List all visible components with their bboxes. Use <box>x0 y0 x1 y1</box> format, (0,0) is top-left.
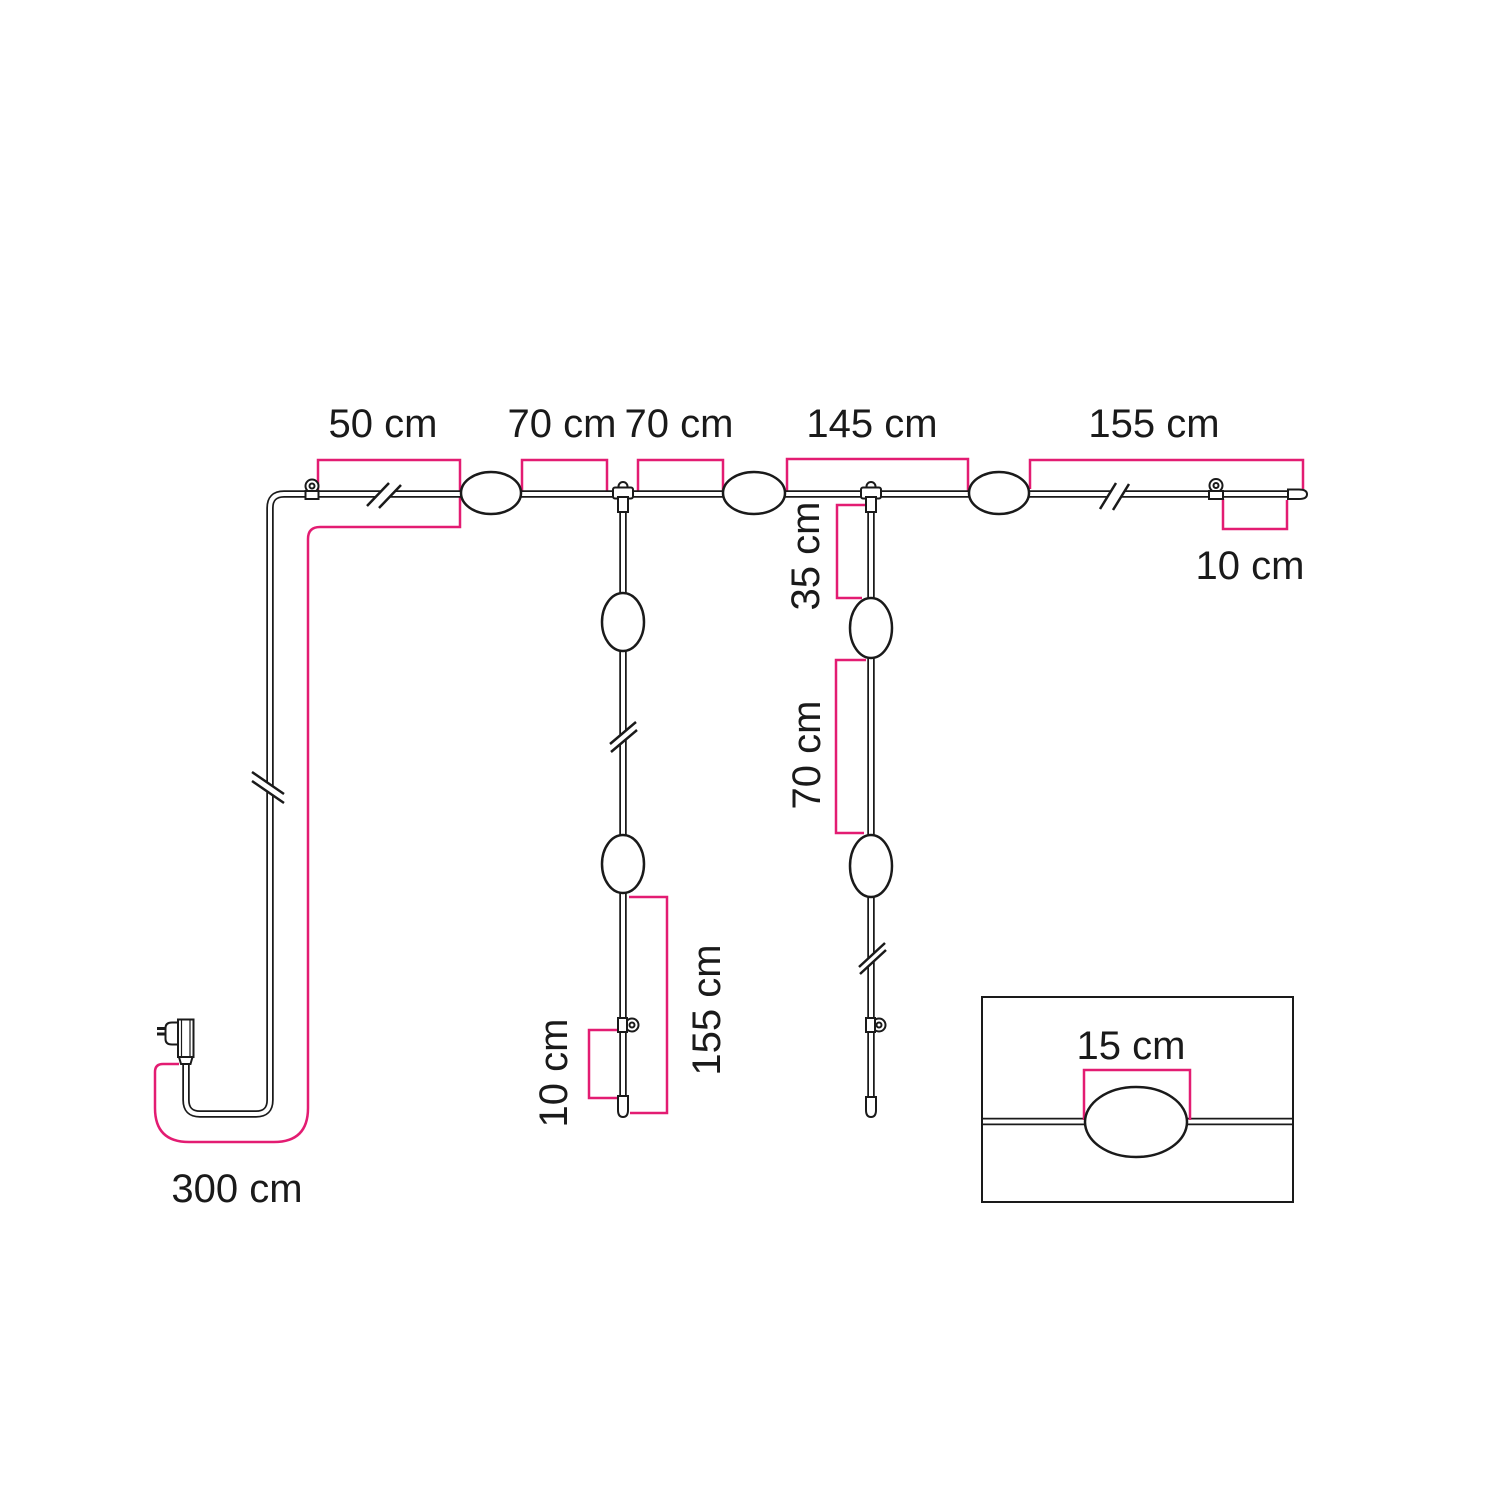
dim-10cm-top <box>1223 499 1287 529</box>
measurement-diagram: 50 cm 70 cm 70 cm 145 cm 155 cm 10 cm 35… <box>0 0 1500 1500</box>
t-junction-connector-icon <box>861 482 881 512</box>
dim-70cm-b <box>638 460 723 492</box>
mounting-eyelet-hook-icon <box>618 1018 639 1032</box>
dim-10cm-drop <box>589 1030 621 1098</box>
dim-155cm-top <box>1030 460 1303 489</box>
lamp-oval-icon <box>850 835 892 897</box>
dim-label-70cm-a: 70 cm <box>508 404 617 444</box>
dim-label-10cm-drop: 10 cm <box>534 1019 574 1128</box>
diagram-drawing <box>0 0 1500 1500</box>
dim-label-155cm-top: 155 cm <box>1088 404 1219 444</box>
dim-label-50cm: 50 cm <box>329 404 438 444</box>
dim-155cm-drop <box>629 897 667 1113</box>
dim-label-15cm: 15 cm <box>1077 1026 1186 1066</box>
dim-label-35cm: 35 cm <box>786 502 826 611</box>
dim-label-155cm-drop: 155 cm <box>687 944 727 1075</box>
cable-end-cap-icon <box>866 1097 876 1117</box>
lamp-oval-icon <box>969 472 1029 514</box>
lamp-oval-icon <box>1085 1087 1187 1157</box>
cable-end-cap-icon <box>1288 490 1307 500</box>
mounting-eyelet-hook-icon <box>866 1018 886 1032</box>
dim-label-145cm: 145 cm <box>806 404 937 444</box>
dim-35cm <box>837 505 868 598</box>
cable-end-cap-icon <box>618 1096 628 1117</box>
dim-label-300cm: 300 cm <box>171 1169 302 1209</box>
mounting-hooks <box>306 479 1224 1032</box>
dim-label-10cm-top: 10 cm <box>1196 546 1305 586</box>
dim-70cm-drop <box>836 660 866 833</box>
dim-70cm-a <box>522 460 607 492</box>
dim-label-70cm-b: 70 cm <box>625 404 734 444</box>
mounting-eyelet-hook-icon <box>306 480 319 500</box>
lamp-oval-icon <box>850 598 892 658</box>
lamp-oval-icon <box>602 835 644 893</box>
t-junction-connector-icon <box>613 482 633 512</box>
lamps <box>461 472 1029 897</box>
lamp-oval-icon <box>461 472 521 514</box>
dim-label-70cm-drop: 70 cm <box>787 701 827 810</box>
cable-break-marks <box>252 483 1129 974</box>
lamp-oval-icon <box>602 593 644 651</box>
mounting-eyelet-hook-icon <box>1209 479 1223 499</box>
dim-50cm-and-300cm-path <box>155 460 460 1142</box>
power-plug-icon <box>157 1020 194 1065</box>
lamp-oval-icon <box>723 472 785 514</box>
